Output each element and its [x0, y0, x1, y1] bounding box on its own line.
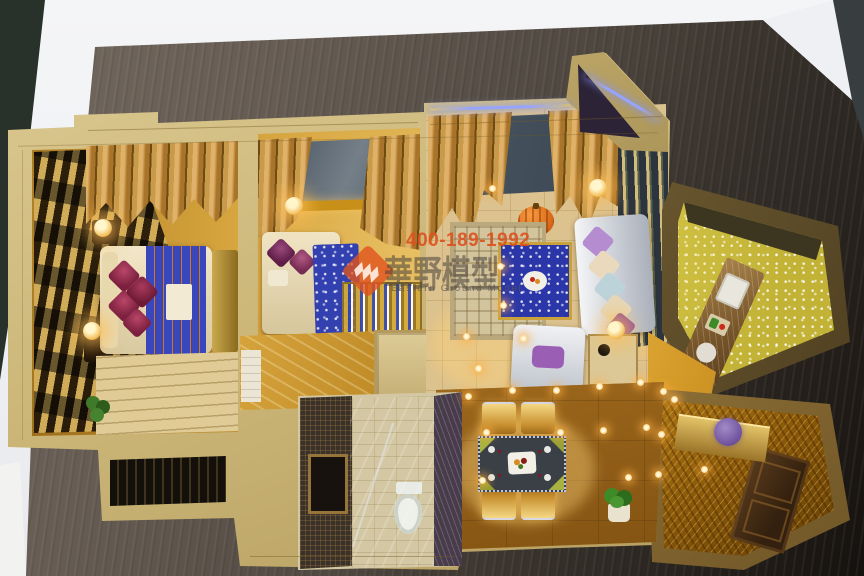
ceiling-light: [489, 185, 496, 192]
ceiling-light: [671, 396, 678, 403]
ceiling-light: [600, 427, 607, 434]
sphere-lamp: [589, 179, 607, 197]
ceiling-light: [658, 431, 665, 438]
ceiling-light: [557, 429, 564, 436]
ceiling-light: [463, 333, 470, 340]
ceiling-light: [637, 379, 644, 386]
ceiling-light: [509, 387, 516, 394]
scale-model-photo: 400-189-1992 華野模型 Eastern Ground Model: [0, 0, 864, 576]
ceiling-light: [500, 302, 507, 309]
ceiling-light: [655, 471, 662, 478]
sphere-lamp: [285, 197, 303, 215]
ceiling-light: [596, 383, 603, 390]
ceiling-light: [643, 424, 650, 431]
ceiling-light: [625, 474, 632, 481]
ceiling-light: [553, 387, 560, 394]
ceiling-light: [520, 335, 527, 342]
ceiling-light: [475, 365, 482, 372]
sphere-lamp: [607, 321, 625, 339]
ceiling-light: [479, 477, 486, 484]
sphere-lamp: [83, 322, 101, 340]
ceiling-light: [660, 388, 667, 395]
watermark-brand-english: Eastern Ground Model: [391, 283, 523, 294]
ceiling-light: [483, 429, 490, 436]
ceiling-light: [701, 466, 708, 473]
ceiling-light: [465, 393, 472, 400]
sphere-lamp: [94, 219, 112, 237]
